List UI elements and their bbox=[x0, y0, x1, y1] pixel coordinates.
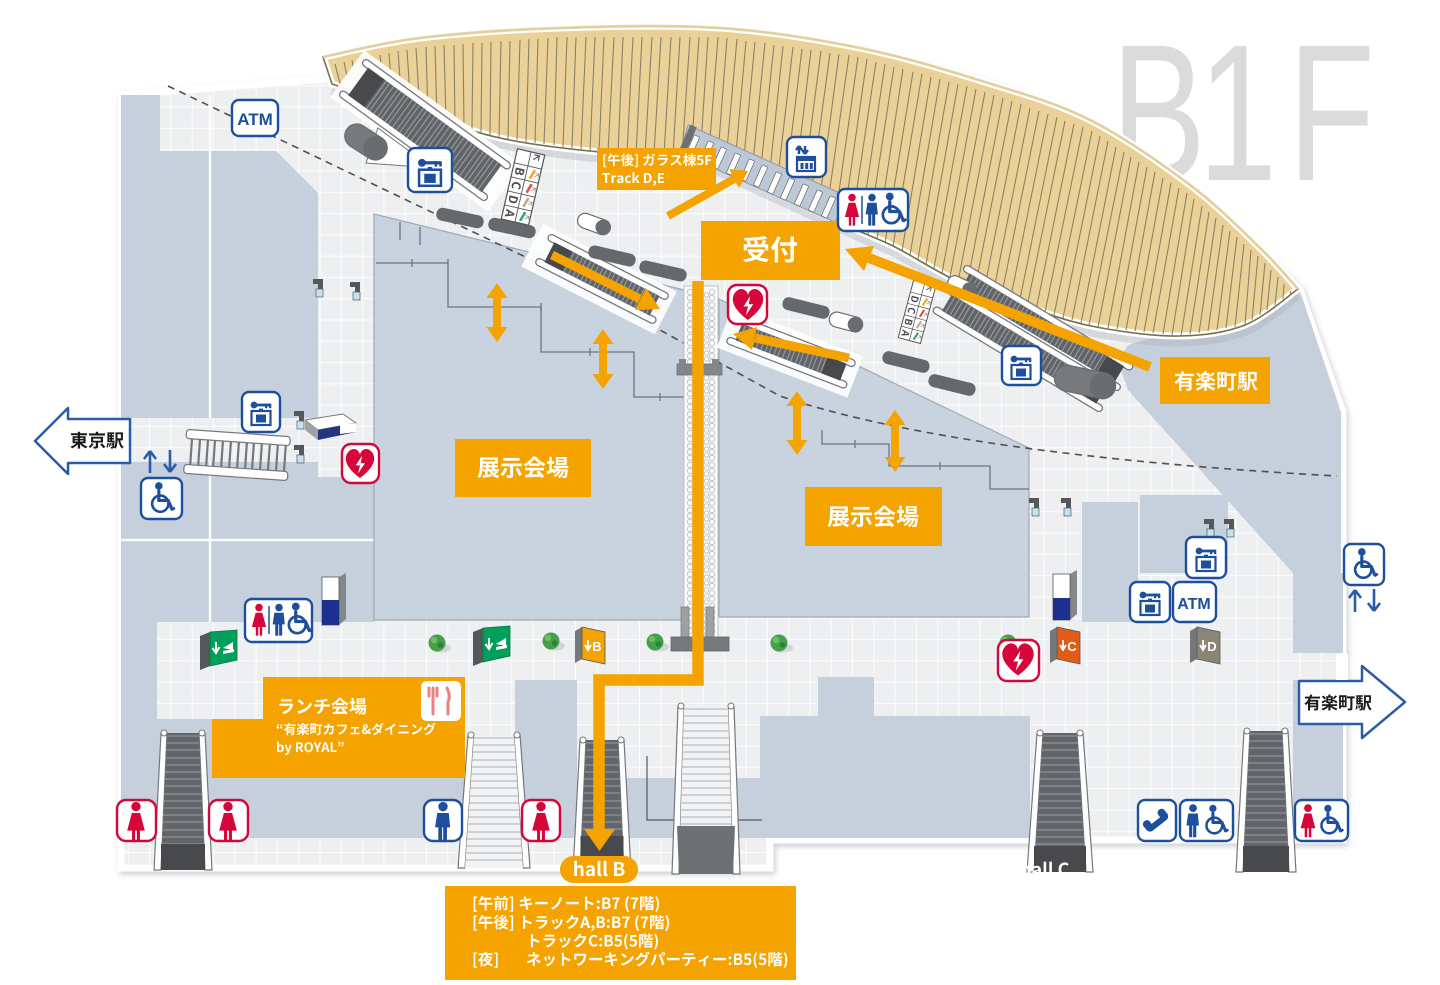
svg-text:ATM: ATM bbox=[237, 110, 273, 129]
svg-text:ATM: ATM bbox=[1177, 596, 1210, 613]
svg-text:C: C bbox=[1067, 639, 1077, 654]
svg-text:B: B bbox=[592, 639, 601, 654]
svg-text:F: F bbox=[1288, 4, 1375, 222]
svg-text:D: D bbox=[1207, 639, 1216, 654]
svg-text:1: 1 bbox=[1198, 4, 1277, 222]
